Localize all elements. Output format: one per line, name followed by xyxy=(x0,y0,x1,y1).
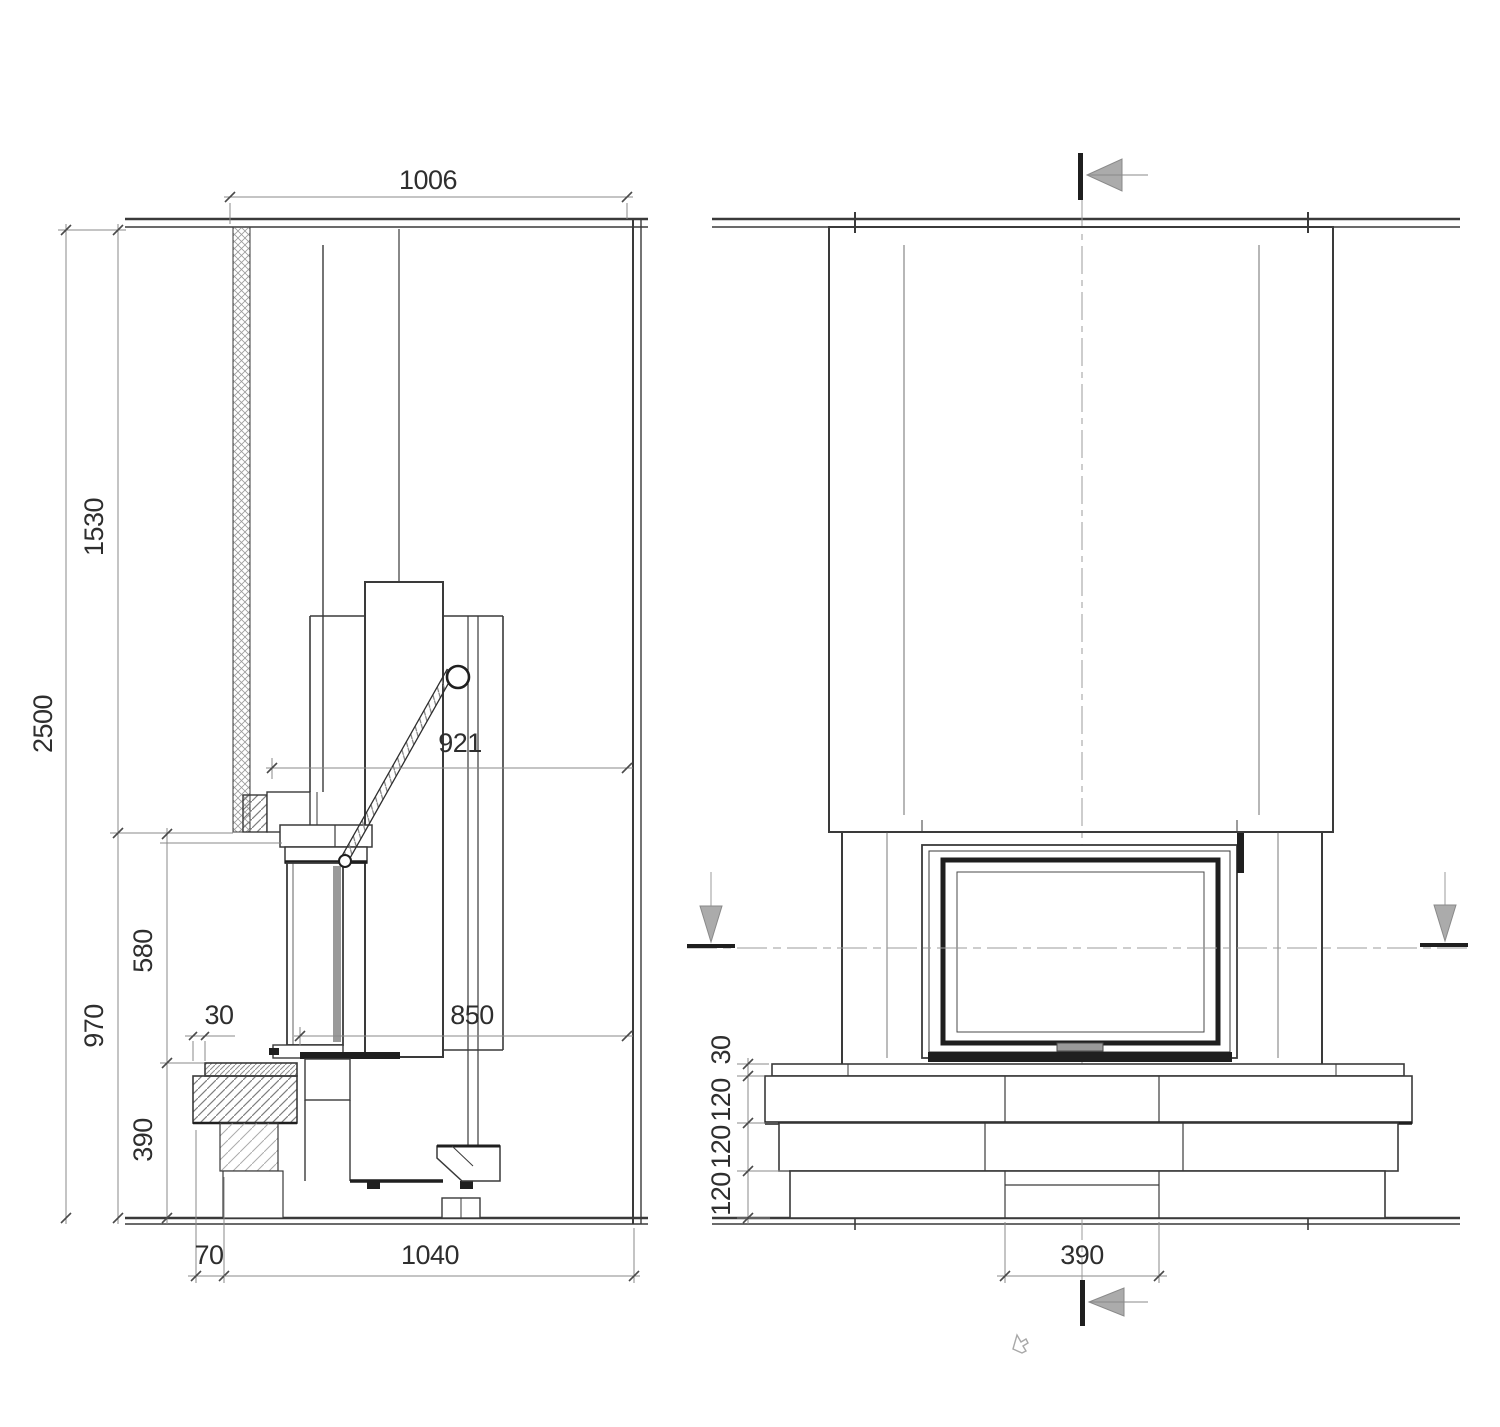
section-arrow-right-icon xyxy=(1420,872,1468,945)
dim-slab-thickness: 30 xyxy=(706,1035,736,1064)
door-glass xyxy=(957,872,1204,1032)
door-sill-front xyxy=(928,1052,1232,1062)
stove-foot-right xyxy=(460,1181,473,1189)
side-section-view: 1006 2500 1530 970 580 390 xyxy=(28,165,648,1283)
section-marker-top xyxy=(1078,153,1148,200)
front-ceiling-line xyxy=(712,212,1460,233)
glass-pane xyxy=(333,866,341,1042)
dim-center-block-width: 390 xyxy=(1060,1240,1104,1270)
door-handle xyxy=(1057,1043,1103,1051)
bench-block-large xyxy=(193,1076,297,1123)
hinge-stub xyxy=(1237,833,1244,873)
dim-top-width: 1006 xyxy=(399,165,457,195)
fireplace-technical-drawing: 1006 2500 1530 970 580 390 xyxy=(0,0,1500,1427)
base-course-2 xyxy=(779,1123,1398,1171)
base-course-1 xyxy=(765,1076,1412,1123)
dim-upper-height: 1530 xyxy=(79,498,109,556)
bench-slab xyxy=(205,1063,297,1076)
dim-course-1: 120 xyxy=(706,1078,736,1122)
drawing-canvas: 1006 2500 1530 970 580 390 xyxy=(0,0,1500,1427)
firebox-pedestal xyxy=(305,1059,473,1189)
hearth-slab xyxy=(772,1064,1404,1076)
section-marker-bottom xyxy=(1080,1280,1148,1326)
side-view-dimensions: 1006 2500 1530 970 580 390 xyxy=(28,165,640,1283)
dim-front-gap: 70 xyxy=(194,1240,223,1270)
dim-bench-height: 390 xyxy=(128,1118,158,1162)
handle-pivot-top xyxy=(447,666,469,688)
stove-foot-left xyxy=(367,1181,380,1189)
dim-firebox-depth: 850 xyxy=(450,1000,494,1030)
dim-lower-height: 970 xyxy=(79,1004,109,1048)
rear-wall-line xyxy=(633,219,641,1224)
bench-pedestal xyxy=(223,1171,283,1218)
chase-hood xyxy=(829,227,1333,832)
dim-bench-offset: 30 xyxy=(204,1000,233,1030)
bench-block-medium xyxy=(220,1123,278,1171)
ceiling-line xyxy=(125,219,648,227)
front-elevation-view: 30 120 120 120 390 xyxy=(687,153,1468,1353)
section-arrow-left-icon xyxy=(687,872,735,946)
door-latch xyxy=(269,1048,279,1055)
base-course-3 xyxy=(790,1171,1385,1218)
dim-base-depth: 1040 xyxy=(401,1240,459,1270)
floor-line xyxy=(125,1218,648,1224)
dim-total-height: 2500 xyxy=(28,695,58,753)
dim-course-3: 120 xyxy=(706,1172,736,1216)
stone-base xyxy=(765,1064,1412,1218)
bench-blocks xyxy=(193,1063,297,1218)
rear-column xyxy=(365,582,443,1057)
handle-pivot-bottom xyxy=(339,855,351,867)
dim-door-height: 580 xyxy=(128,929,158,973)
cursor-icon xyxy=(1013,1335,1028,1353)
insulation-strip xyxy=(233,227,250,832)
door-sill xyxy=(300,1052,400,1059)
dim-handle-depth: 921 xyxy=(438,728,482,758)
dim-course-2: 120 xyxy=(706,1125,736,1169)
